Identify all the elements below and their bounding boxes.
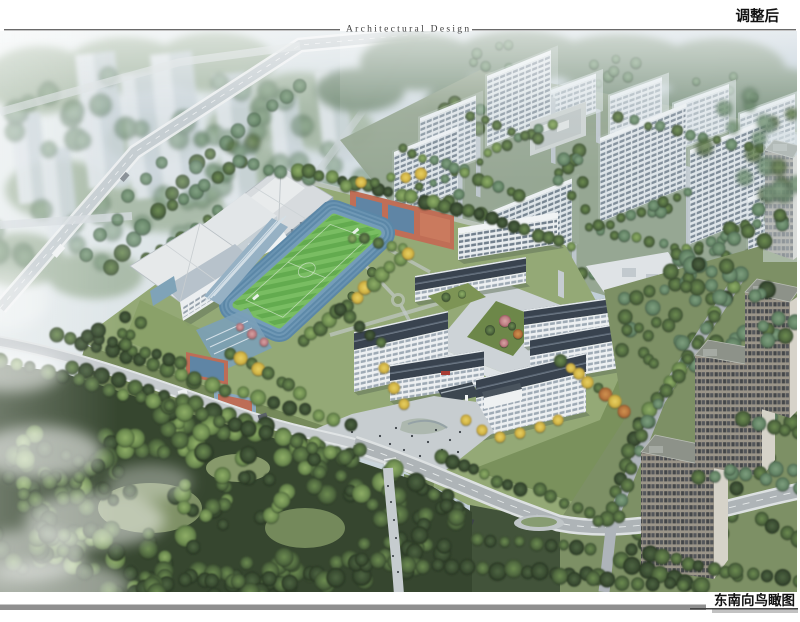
svg-text:Architectural Design: Architectural Design [346, 25, 471, 35]
svg-text:调整后: 调整后 [736, 7, 780, 25]
svg-text:东南向鸟瞰图: 东南向鸟瞰图 [714, 592, 795, 608]
